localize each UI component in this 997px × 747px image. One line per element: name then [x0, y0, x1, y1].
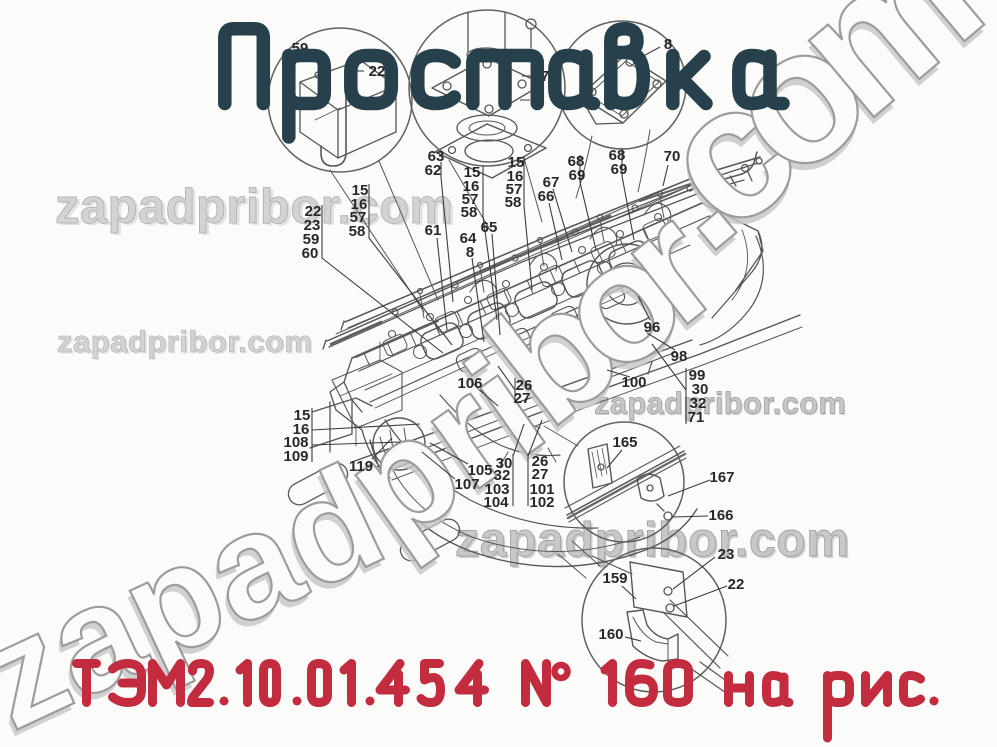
svg-text:69: 69	[569, 167, 586, 184]
svg-text:102: 102	[529, 494, 554, 511]
svg-text:98: 98	[671, 348, 688, 365]
svg-text:62: 62	[425, 162, 442, 179]
svg-text:69: 69	[611, 161, 628, 178]
svg-text:zapadpribor.com: zapadpribor.com	[57, 324, 312, 359]
svg-text:165: 165	[612, 434, 637, 451]
svg-text:109: 109	[283, 448, 308, 465]
svg-text:167: 167	[709, 469, 734, 486]
svg-text:104: 104	[483, 494, 509, 511]
svg-text:27: 27	[514, 390, 531, 407]
svg-text:58: 58	[505, 194, 522, 211]
svg-text:166: 166	[708, 507, 733, 524]
svg-text:22: 22	[369, 63, 386, 80]
svg-text:159: 159	[602, 570, 627, 587]
svg-text:71: 71	[688, 409, 705, 426]
svg-text:58: 58	[461, 204, 478, 221]
svg-text:zapadpribor.com: zapadpribor.com	[55, 180, 453, 234]
svg-text:zapadpribor.com: zapadpribor.com	[455, 514, 849, 567]
svg-text:61: 61	[425, 222, 442, 239]
svg-text:60: 60	[302, 245, 319, 262]
svg-text:106: 106	[457, 375, 482, 392]
svg-text:67: 67	[543, 174, 560, 191]
svg-text:58: 58	[349, 223, 366, 240]
svg-text:23: 23	[718, 546, 735, 563]
svg-text:107: 107	[454, 476, 479, 493]
svg-text:22: 22	[728, 576, 745, 593]
svg-text:100: 100	[621, 374, 646, 391]
svg-text:119: 119	[349, 458, 373, 475]
svg-text:65: 65	[481, 219, 498, 236]
svg-text:96: 96	[644, 319, 661, 336]
svg-text:160: 160	[598, 626, 623, 643]
svg-text:70: 70	[664, 148, 681, 165]
svg-text:8: 8	[466, 244, 474, 261]
